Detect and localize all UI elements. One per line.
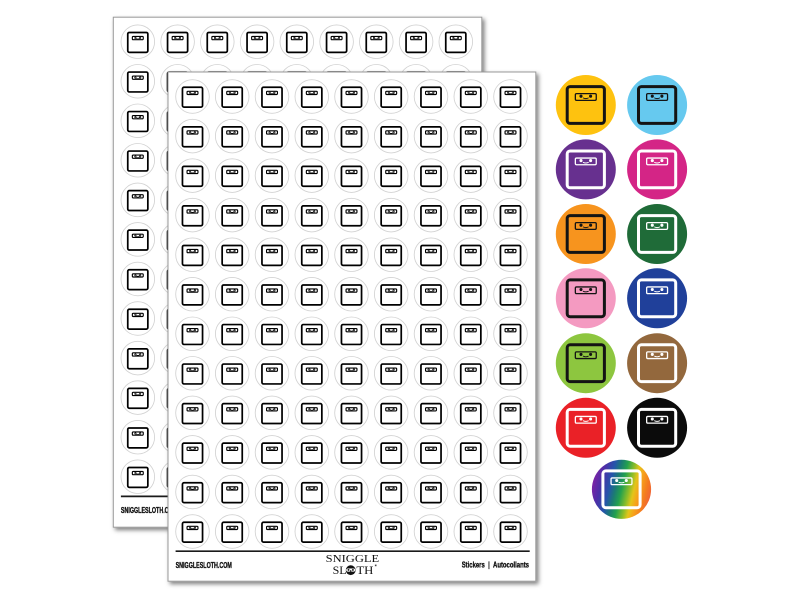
- svg-text:SL: SL: [333, 565, 347, 577]
- svg-text:SNIGGLE: SNIGGLE: [326, 554, 380, 565]
- svg-text:SNIGGLESLOTH.COM: SNIGGLESLOTH.COM: [176, 560, 232, 570]
- svg-text:TH: TH: [356, 565, 373, 577]
- svg-text:Stickers | Autocollants: Stickers | Autocollants: [462, 559, 529, 569]
